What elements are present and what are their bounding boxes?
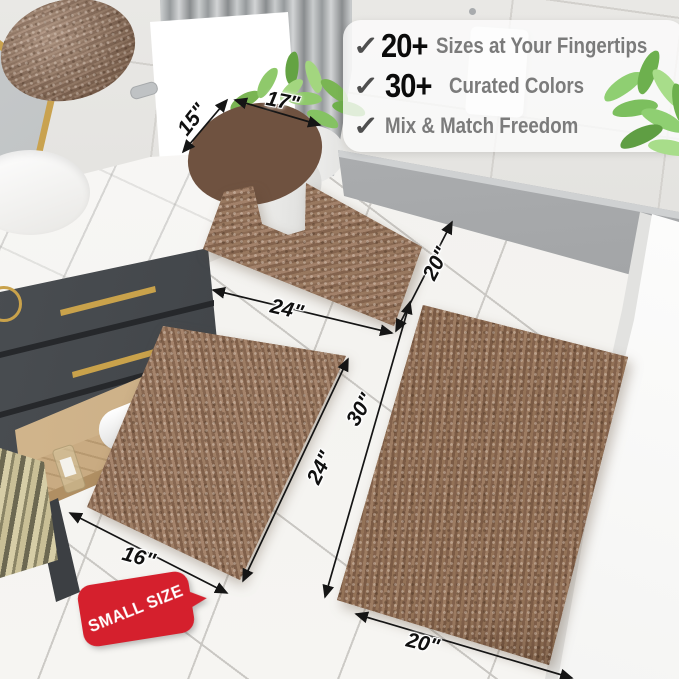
feature-label: Sizes at Your Fingertips <box>436 33 647 59</box>
badge-label: SMALL SIZE <box>86 581 187 637</box>
badge-tail <box>184 590 207 613</box>
feature-number: 30+ <box>385 67 436 105</box>
feature-label: Mix & Match Freedom <box>385 113 578 139</box>
bathroom-scene: 15" 17" 24" 20" 16" 24" 30" 20" ✓ 20+ Si… <box>0 0 679 679</box>
feature-row: ✓ 20+ Sizes at Your Fingertips <box>353 28 679 64</box>
check-icon: ✓ <box>353 31 385 62</box>
feature-label: Curated Colors <box>449 73 584 99</box>
feature-number: 20+ <box>381 27 425 65</box>
